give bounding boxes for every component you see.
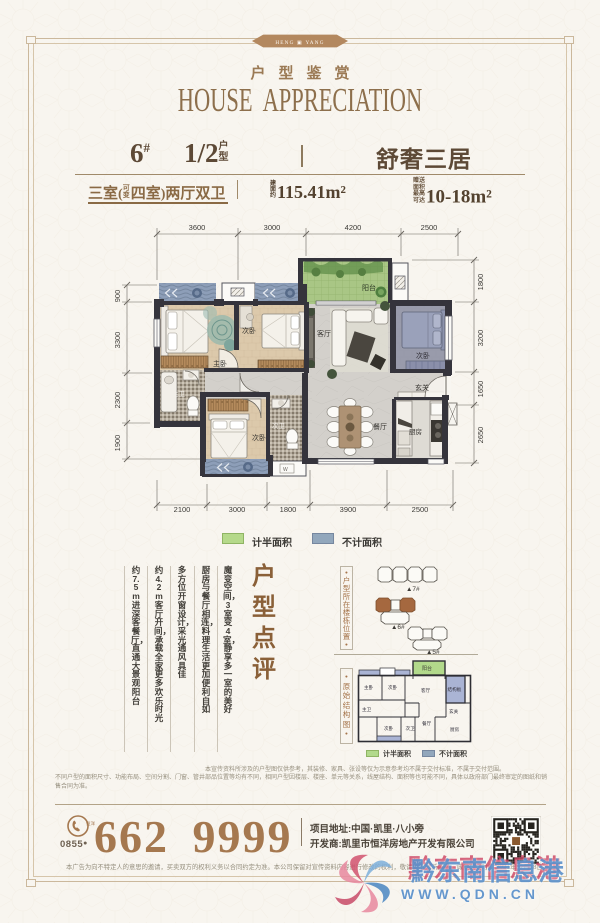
svg-text:次卫: 次卫 (406, 725, 416, 732)
svg-text:1800: 1800 (280, 505, 297, 514)
svg-text:2650: 2650 (476, 427, 485, 444)
svg-text:厨房: 厨房 (450, 726, 460, 733)
svg-text:主卧: 主卧 (364, 684, 374, 691)
svg-text:玄关: 玄关 (415, 383, 429, 392)
svg-text:W: W (283, 467, 288, 473)
svg-text:2300: 2300 (113, 392, 122, 409)
svg-text:2500: 2500 (412, 505, 429, 514)
svg-text:3900: 3900 (340, 505, 357, 514)
svg-text:餐厅: 餐厅 (422, 720, 432, 727)
svg-text:3200: 3200 (476, 330, 485, 347)
svg-text:次卧: 次卧 (416, 351, 430, 360)
svg-text:厨房: 厨房 (409, 427, 422, 436)
svg-text:客厅: 客厅 (421, 687, 431, 694)
svg-text:阳台: 阳台 (362, 283, 376, 292)
svg-text:次卧: 次卧 (242, 326, 256, 335)
svg-text:2500: 2500 (421, 223, 438, 232)
svg-text:主卫: 主卫 (172, 389, 186, 398)
svg-text:▲7#: ▲7# (406, 586, 420, 593)
svg-text:4200: 4200 (345, 223, 362, 232)
svg-text:客厅: 客厅 (317, 329, 331, 338)
svg-text:3000: 3000 (264, 223, 281, 232)
svg-text:餐厅: 餐厅 (373, 422, 387, 431)
svg-text:3300: 3300 (113, 332, 122, 349)
svg-text:1800: 1800 (476, 274, 485, 291)
svg-text:3000: 3000 (229, 505, 246, 514)
svg-text:1900: 1900 (113, 435, 122, 452)
svg-text:3600: 3600 (189, 223, 206, 232)
svg-text:玄关: 玄关 (449, 708, 459, 715)
svg-text:2100: 2100 (174, 505, 191, 514)
svg-text:结构板: 结构板 (448, 686, 462, 693)
svg-text:次卧: 次卧 (388, 684, 398, 691)
svg-text:阳台: 阳台 (422, 665, 432, 672)
svg-text:1650: 1650 (476, 381, 485, 398)
svg-text:▲6#: ▲6# (391, 624, 405, 631)
svg-text:次卧: 次卧 (384, 725, 394, 732)
svg-text:900: 900 (113, 290, 122, 303)
svg-text:主卫: 主卫 (362, 706, 372, 712)
svg-text:次卧: 次卧 (252, 433, 266, 442)
svg-text:HENG ▣ YANG: HENG ▣ YANG (275, 40, 324, 46)
svg-text:主卧: 主卧 (213, 359, 227, 368)
svg-text:次卫: 次卫 (272, 421, 286, 430)
